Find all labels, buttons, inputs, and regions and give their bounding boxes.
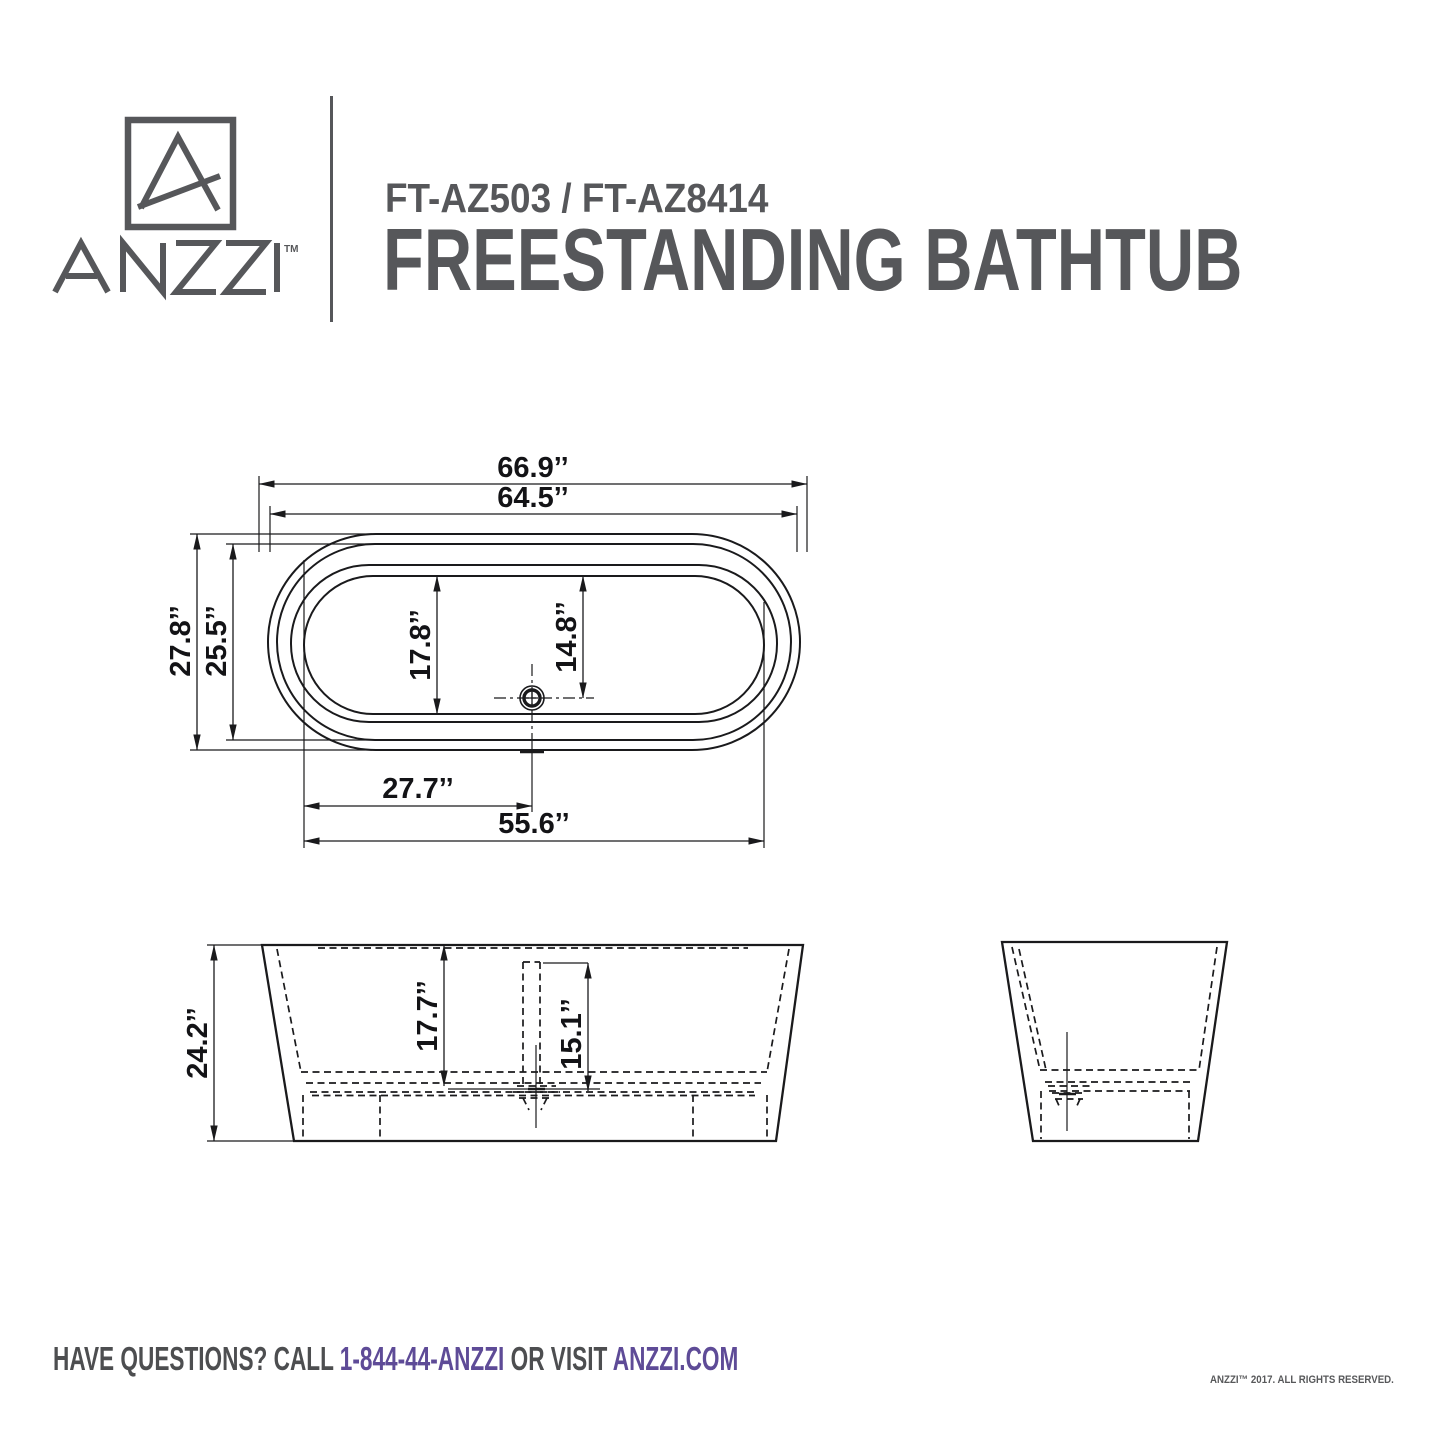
dim-label: 24.2’’ [182, 1007, 214, 1078]
footer-question-text: HAVE QUESTIONS? CALL [53, 1340, 340, 1377]
dimension-drawing: 66.9’’ 64.5’’ 27.8’’ 25.5’’ 17.8’’ 14.8’… [0, 0, 1445, 1445]
dim-label: 15.1’’ [556, 998, 588, 1069]
top-view: 66.9’’ 64.5’’ 27.8’’ 25.5’’ 17.8’’ 14.8’… [165, 452, 807, 848]
dim-overall-length: 66.9’’ [259, 452, 807, 484]
drain-symbol [494, 664, 594, 812]
top-view-extension-lines [190, 476, 807, 848]
footer-contact-line: HAVE QUESTIONS? CALL 1-844-44-ANZZI OR V… [53, 1342, 738, 1375]
dim-label: 17.8’’ [405, 609, 437, 680]
dim-basin-width: 17.8’’ [405, 576, 437, 714]
end-hidden-lines [1012, 947, 1217, 1139]
basin-bottom-edge [304, 576, 764, 714]
end-feet [1041, 1091, 1189, 1139]
footer-website-link[interactable]: ANZZI.COM [613, 1340, 739, 1377]
front-view: 24.2’’ 17.7’’ 15.1’’ [182, 945, 803, 1141]
dim-drain-offset-length: 27.7’’ [304, 773, 532, 806]
dim-inner-depth: 17.7’’ [412, 945, 444, 1086]
dim-label: 64.5’’ [497, 482, 568, 514]
dim-label: 25.5’’ [201, 605, 233, 676]
end-outline [1002, 942, 1227, 1141]
dim-rim-width: 25.5’’ [201, 544, 233, 740]
dim-overall-height: 24.2’’ [182, 945, 214, 1141]
end-view [1002, 942, 1227, 1141]
dim-drain-offset-width: 14.8’’ [551, 576, 583, 698]
dim-label: 66.9’’ [497, 452, 568, 484]
footer-phone-link[interactable]: 1-844-44-ANZZI [340, 1340, 505, 1377]
dim-label: 55.6’’ [498, 808, 569, 840]
tub-outer-rim [268, 534, 800, 750]
front-outline [262, 945, 803, 1141]
front-hidden-lines [277, 948, 789, 1139]
dim-basin-length: 55.6’’ [304, 808, 764, 841]
dim-label: 14.8’’ [551, 601, 583, 672]
front-feet [303, 1095, 767, 1139]
copyright-notice: ANZZI™ 2017. ALL RIGHTS RESERVED. [1210, 1374, 1394, 1386]
footer-or-visit-text: OR VISIT [504, 1340, 612, 1377]
dim-overall-width: 27.8’’ [165, 534, 197, 750]
dim-label: 27.8’’ [165, 605, 197, 676]
dim-label: 27.7’’ [382, 773, 453, 805]
dim-rim-length: 64.5’’ [270, 482, 797, 514]
spec-sheet-page: TM FT-AZ503 / FT-AZ8414 FREESTANDING BAT… [0, 0, 1445, 1445]
dim-label: 17.7’’ [412, 980, 444, 1051]
